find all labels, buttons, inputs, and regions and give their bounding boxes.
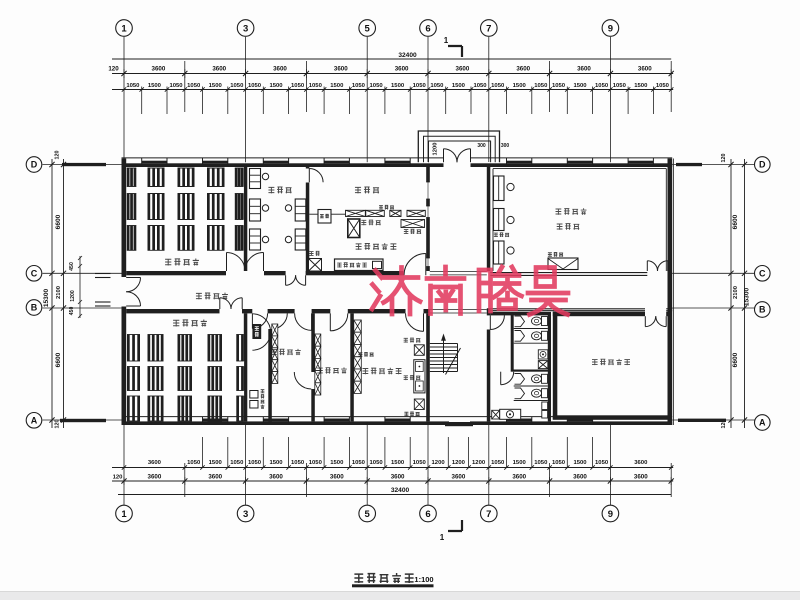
svg-text:1: 1 <box>121 23 127 34</box>
svg-text:2100: 2100 <box>56 286 62 299</box>
svg-text:9: 9 <box>608 509 613 520</box>
svg-text:1200: 1200 <box>70 290 76 302</box>
svg-text:3600: 3600 <box>452 473 466 480</box>
svg-text:1050: 1050 <box>413 83 427 89</box>
svg-text:3: 3 <box>243 23 248 34</box>
svg-text:32400: 32400 <box>398 52 417 59</box>
svg-text:1050: 1050 <box>230 83 244 89</box>
svg-text:300: 300 <box>477 143 486 149</box>
svg-text:3600: 3600 <box>634 460 648 466</box>
svg-text:1050: 1050 <box>534 83 548 89</box>
svg-text:1050: 1050 <box>370 460 384 466</box>
svg-text:120: 120 <box>721 154 727 163</box>
svg-text:3: 3 <box>243 509 248 520</box>
svg-text:1050: 1050 <box>248 83 262 89</box>
svg-text:3600: 3600 <box>212 66 226 73</box>
svg-text:B: B <box>759 305 766 315</box>
svg-text:5: 5 <box>365 509 371 520</box>
svg-text:6600: 6600 <box>55 352 62 367</box>
svg-text:300: 300 <box>501 143 510 149</box>
svg-text:1: 1 <box>440 533 445 542</box>
svg-text:1200: 1200 <box>472 460 486 466</box>
svg-text:1500: 1500 <box>269 460 283 466</box>
svg-text:3600: 3600 <box>148 473 162 480</box>
svg-text:3600: 3600 <box>334 66 348 73</box>
svg-text:1500: 1500 <box>573 460 587 466</box>
svg-text:3600: 3600 <box>456 66 470 73</box>
svg-text:A: A <box>759 418 766 428</box>
svg-text:6: 6 <box>425 509 430 520</box>
svg-text:1500: 1500 <box>330 460 344 466</box>
svg-text:1: 1 <box>444 36 449 45</box>
svg-text:15300: 15300 <box>744 288 751 307</box>
svg-text:3600: 3600 <box>512 473 526 480</box>
svg-text:120: 120 <box>55 420 61 429</box>
svg-text:1500: 1500 <box>513 83 527 89</box>
svg-text:120: 120 <box>55 151 61 160</box>
svg-text:1050: 1050 <box>352 460 366 466</box>
svg-text:D: D <box>31 160 38 170</box>
svg-text:3600: 3600 <box>330 473 344 480</box>
svg-text:3600: 3600 <box>152 66 166 73</box>
svg-text:1050: 1050 <box>656 83 670 89</box>
svg-text:1200: 1200 <box>433 143 439 156</box>
svg-text:450: 450 <box>69 262 75 271</box>
svg-text:3600: 3600 <box>638 66 652 73</box>
svg-text:1050: 1050 <box>473 83 487 89</box>
svg-text:1200: 1200 <box>452 460 466 466</box>
svg-text:9: 9 <box>608 23 613 34</box>
svg-text:1050: 1050 <box>534 460 548 466</box>
svg-text:3600: 3600 <box>395 66 409 73</box>
svg-text:6600: 6600 <box>55 214 62 229</box>
svg-text:5: 5 <box>365 23 371 34</box>
svg-text:1050: 1050 <box>595 83 609 89</box>
svg-text:120: 120 <box>113 474 124 480</box>
svg-text:2100: 2100 <box>733 286 739 299</box>
svg-text:1500: 1500 <box>148 83 162 89</box>
svg-text:3600: 3600 <box>391 473 405 480</box>
svg-text:A: A <box>31 416 38 426</box>
svg-text:1050: 1050 <box>169 83 183 89</box>
svg-text:1500: 1500 <box>634 83 648 89</box>
svg-text:3600: 3600 <box>634 473 648 480</box>
svg-text:1050: 1050 <box>291 83 305 89</box>
svg-text:3600: 3600 <box>577 66 591 73</box>
svg-text:1500: 1500 <box>391 460 405 466</box>
svg-text:1500: 1500 <box>391 83 405 89</box>
svg-text:1050: 1050 <box>491 83 505 89</box>
svg-text:120: 120 <box>108 66 119 73</box>
svg-text:1050: 1050 <box>309 460 323 466</box>
svg-text:7: 7 <box>486 23 491 34</box>
svg-text:1050: 1050 <box>613 83 627 89</box>
svg-text:1050: 1050 <box>291 460 305 466</box>
svg-text:32400: 32400 <box>391 487 410 494</box>
svg-text:1050: 1050 <box>352 83 366 89</box>
svg-text:15300: 15300 <box>43 289 50 308</box>
svg-text:1500: 1500 <box>452 83 466 89</box>
svg-text:C: C <box>759 269 766 279</box>
svg-text:1500: 1500 <box>269 83 283 89</box>
svg-text:1:100: 1:100 <box>414 575 433 584</box>
svg-text:1050: 1050 <box>430 83 444 89</box>
svg-text:3600: 3600 <box>148 460 162 466</box>
svg-text:C: C <box>31 269 38 279</box>
svg-text:B: B <box>31 303 38 313</box>
svg-text:6600: 6600 <box>732 214 739 229</box>
svg-text:1050: 1050 <box>552 460 566 466</box>
svg-text:1500: 1500 <box>330 83 344 89</box>
svg-text:3600: 3600 <box>208 473 222 480</box>
svg-text:1050: 1050 <box>230 460 244 466</box>
svg-text:3600: 3600 <box>516 66 530 73</box>
svg-text:1050: 1050 <box>187 83 201 89</box>
svg-text:1500: 1500 <box>573 83 587 89</box>
svg-text:1500: 1500 <box>209 83 223 89</box>
svg-text:7: 7 <box>486 509 491 520</box>
svg-text:1: 1 <box>121 509 127 520</box>
svg-text:1050: 1050 <box>491 460 505 466</box>
svg-text:6600: 6600 <box>732 352 739 367</box>
svg-text:D: D <box>759 160 766 170</box>
svg-text:1050: 1050 <box>126 83 140 89</box>
svg-text:1050: 1050 <box>552 83 566 89</box>
svg-text:3600: 3600 <box>573 473 587 480</box>
svg-text:1500: 1500 <box>513 460 527 466</box>
svg-text:6: 6 <box>425 23 430 34</box>
svg-text:1200: 1200 <box>432 460 446 466</box>
svg-text:1050: 1050 <box>595 460 609 466</box>
svg-text:1050: 1050 <box>370 83 384 89</box>
svg-text:3600: 3600 <box>269 473 283 480</box>
svg-text:1500: 1500 <box>209 460 223 466</box>
svg-text:1050: 1050 <box>187 460 201 466</box>
svg-text:3600: 3600 <box>273 66 287 73</box>
svg-text:1050: 1050 <box>309 83 323 89</box>
svg-text:1050: 1050 <box>413 460 427 466</box>
svg-text:1050: 1050 <box>248 460 262 466</box>
